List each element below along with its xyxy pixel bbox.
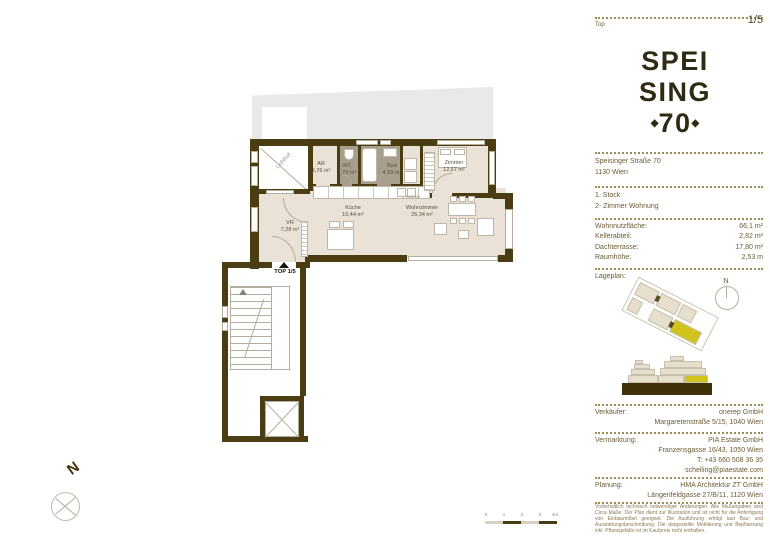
vermarktung-label: Vermarktung:: [595, 435, 637, 446]
elevation-slab: [631, 369, 655, 375]
pillow: [454, 149, 465, 155]
spec-row: Wohnnutzfläche:66,1 m²: [595, 222, 763, 232]
divider: [595, 404, 763, 406]
divider: [595, 432, 763, 434]
divider: [595, 152, 763, 154]
compass-needle: [726, 287, 727, 298]
highlighted-unit-slab: [684, 375, 708, 383]
compass-needle: [55, 498, 76, 516]
info-panel: Top 1/5 SPEI SING ◆70◆ Speisinger Straße…: [595, 0, 763, 545]
window: [266, 190, 294, 194]
dining-table: [448, 203, 476, 216]
divider: [595, 17, 763, 19]
chair: [343, 221, 354, 228]
north-letter: N: [64, 458, 83, 478]
plan-sheet: TOP 1/5 Lichthof AR3,76 m² WC1,70 m² Bad…: [0, 0, 770, 545]
planung-label: Planung:: [595, 480, 623, 491]
logo-line-3: ◆70◆: [595, 108, 755, 139]
kitchen-table: [327, 229, 354, 250]
closet-label: KLEIDE: [406, 194, 420, 199]
elevation-slab: [635, 360, 643, 364]
scale-segment: [539, 521, 557, 524]
divider: [595, 477, 763, 479]
scale-segment: [503, 521, 521, 524]
unit-floor: 1. Stock: [595, 190, 620, 201]
scale-bar: 0 1 2 3 4m: [485, 512, 561, 524]
room-label-vr: VR7,28 m²: [276, 220, 304, 234]
wardrobe: [424, 152, 435, 191]
sliding-door-window: [505, 209, 513, 249]
scale-label: 1: [503, 512, 506, 517]
vermarktung-line: schelling@piaestate.com: [685, 465, 763, 476]
staircase: [230, 286, 290, 370]
scale-label: 3: [539, 512, 542, 517]
chair: [459, 196, 466, 202]
sidebar-north-letter: N: [716, 276, 736, 285]
window: [489, 151, 495, 185]
stairwell-wall: [222, 262, 228, 442]
armchair: [434, 223, 447, 235]
scale-label: 2: [521, 512, 524, 517]
room-label-bad: Bad4,89 m²: [377, 163, 407, 177]
roof-notch: [262, 107, 307, 140]
stair-treads: [231, 287, 272, 370]
wall-segment: [505, 193, 513, 209]
elevation-slab: [660, 368, 706, 375]
unit-type: 2- Zimmer Wohnung: [595, 201, 659, 212]
verkaeufer-label: Verkäufer:: [595, 407, 627, 418]
room-label-kueche: Küche10,44 m²: [336, 205, 370, 219]
stairwell-wall: [300, 268, 306, 396]
window: [251, 207, 258, 232]
page-number: 1/5: [748, 15, 763, 26]
ground-bar: [622, 383, 712, 395]
top-label: Top: [595, 20, 605, 31]
site-plan: N: [615, 281, 745, 351]
divider: [595, 186, 763, 188]
pillow: [440, 149, 451, 155]
divider: [595, 268, 763, 270]
room-label-wc: WC1,70 m²: [332, 163, 362, 177]
scale-segment: [485, 521, 503, 524]
chair: [468, 218, 475, 224]
verkaeufer-line: Margaretenstraße 5/15, 1040 Wien: [654, 417, 763, 428]
window: [222, 306, 228, 318]
entrance-triangle-icon: [279, 262, 289, 268]
window: [408, 256, 498, 261]
window: [251, 166, 258, 186]
elevation-slab: [664, 361, 702, 368]
elevation-slab: [634, 364, 650, 369]
elevation-slab: [628, 375, 658, 383]
spec-row: Dachterrasse:17,80 m²: [595, 243, 763, 253]
compass-icon: [51, 492, 80, 521]
room-label-zimmer: Zimmer12,67 m²: [437, 160, 471, 174]
window: [222, 322, 228, 331]
chair: [450, 196, 457, 202]
logo-line-2: SING: [595, 77, 755, 108]
window: [380, 140, 391, 145]
logo-line-1: SPEI: [595, 46, 755, 77]
coffee-table: [458, 230, 469, 239]
wall-segment: [250, 262, 272, 268]
chair: [329, 221, 340, 228]
wall-segment: [305, 255, 407, 262]
elevation-slab: [670, 356, 684, 361]
toilet: [344, 149, 354, 160]
wall-segment: [498, 255, 513, 262]
kitchen-sink: [397, 188, 406, 197]
room-label-wohnzimmer: Wohnzimmer25,34 m²: [398, 205, 446, 219]
window: [356, 140, 378, 145]
address-city: 1130 Wien: [595, 167, 628, 178]
scale-bar-track: [485, 521, 557, 524]
planung-line: Längenfeldgasse 27/B/11, 1120 Wien: [647, 490, 763, 501]
elevation-slab: [658, 375, 684, 383]
disclaimer-text: Vorbehaltlich technisch notwendiger Ände…: [595, 505, 763, 535]
entrance-label: TOP 1/5: [263, 269, 307, 276]
stairwell-wall: [222, 262, 252, 268]
divider: [595, 218, 763, 220]
site-plan-slab: [621, 277, 718, 352]
address-street: Speisinger Straße 70: [595, 156, 661, 167]
sofa: [477, 218, 494, 236]
diamond-icon: ◆: [692, 118, 700, 129]
elevator: [260, 396, 304, 442]
building-block: [626, 297, 643, 315]
elevation-view: [622, 350, 714, 396]
spec-row: Raumhöhe:2,53 m: [595, 253, 763, 263]
chair: [450, 218, 457, 224]
project-logo: SPEI SING ◆70◆: [595, 46, 755, 139]
spec-row: Kellerabteil:2,82 m²: [595, 232, 763, 242]
spec-table: Wohnnutzfläche:66,1 m² Kellerabteil:2,82…: [595, 222, 763, 264]
washbasin: [383, 148, 397, 157]
bathtub: [362, 148, 377, 182]
scale-label: 0: [485, 512, 488, 517]
scale-segment: [521, 521, 539, 524]
chair: [468, 196, 475, 202]
scale-label: 4m: [552, 512, 558, 517]
chair: [459, 218, 466, 224]
window: [437, 140, 485, 145]
stair-direction-arrow: [239, 289, 247, 295]
window: [251, 151, 258, 163]
sidebar-compass-icon: [715, 286, 739, 310]
